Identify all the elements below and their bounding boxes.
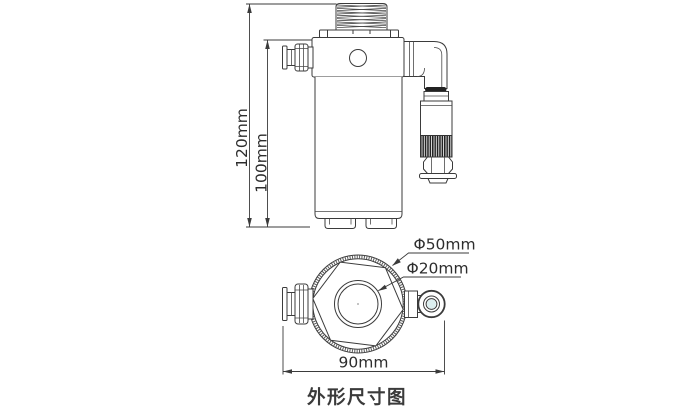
- release-collar-band: [426, 88, 447, 92]
- engineering-drawing: 120mm 100mm: [0, 0, 700, 412]
- mounting-feet: [325, 219, 397, 229]
- center-mark: [357, 303, 359, 305]
- dim-90mm-label: 90mm: [339, 354, 389, 372]
- drawing-caption: 外形尺寸图: [307, 387, 407, 409]
- top-flange: [320, 30, 399, 38]
- canister-body: [315, 77, 402, 219]
- front-view: 120mm 100mm: [233, 4, 457, 229]
- side-inlet-fitting: [283, 44, 314, 71]
- dim-120mm-label: 120mm: [233, 108, 251, 168]
- top-view: Φ50mm Φ20mm 90mm: [283, 236, 476, 375]
- head-section: [312, 38, 404, 78]
- dia-20-label: Φ20mm: [407, 260, 469, 278]
- canister-top-circles: [309, 255, 407, 353]
- top-view-inlet-fitting: [283, 284, 314, 324]
- top-view-elbow-eyelet: [405, 291, 445, 318]
- dimension-drawing-page: 120mm 100mm: [0, 0, 700, 412]
- drain-valve-assembly: [420, 88, 457, 184]
- threaded-port: [336, 4, 387, 31]
- knurled-grip: [421, 136, 453, 158]
- elbow-outlet-fitting: [404, 42, 447, 89]
- dim-100mm-label: 100mm: [253, 133, 271, 193]
- dia-50-label: Φ50mm: [414, 236, 476, 254]
- hex-nut: [424, 157, 453, 174]
